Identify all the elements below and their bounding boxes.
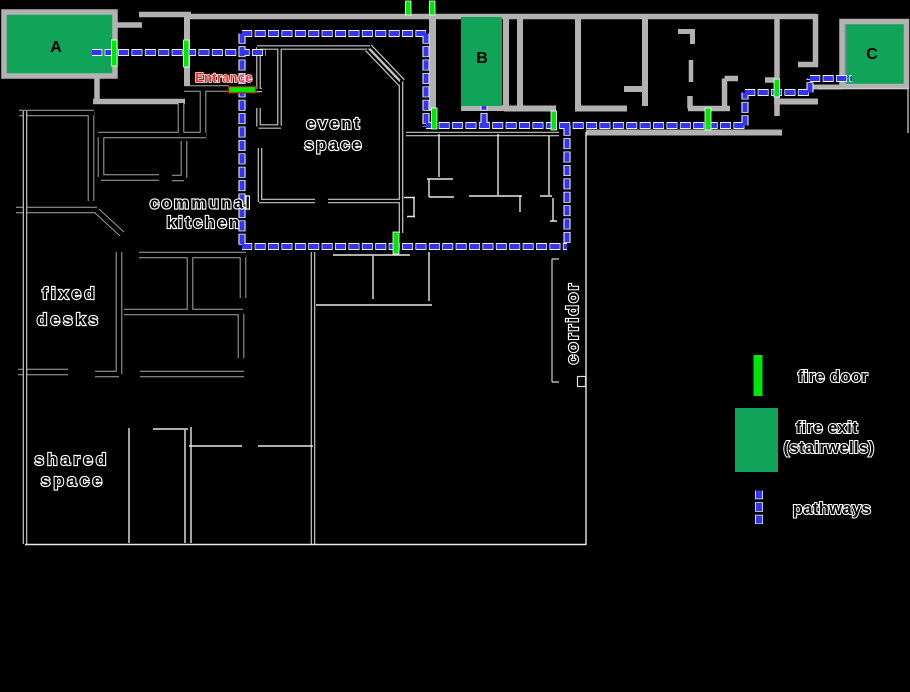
svg-text:pathways: pathways	[793, 500, 871, 518]
svg-text:(stairwells): (stairwells)	[784, 439, 875, 457]
svg-text:communal: communal	[150, 194, 253, 213]
svg-text:C: C	[866, 46, 878, 63]
svg-text:fire exit: fire exit	[796, 419, 858, 437]
svg-text:shared: shared	[35, 450, 110, 469]
svg-text:space: space	[304, 135, 363, 154]
svg-text:fire door: fire door	[798, 368, 869, 386]
svg-text:desks: desks	[37, 310, 101, 329]
svg-text:kitchen: kitchen	[167, 213, 242, 232]
svg-text:A: A	[50, 39, 62, 56]
svg-text:B: B	[476, 50, 488, 67]
svg-text:event: event	[306, 114, 361, 133]
svg-text:Entrance: Entrance	[195, 71, 253, 85]
svg-text:fixed: fixed	[42, 284, 98, 303]
svg-text:space: space	[41, 471, 105, 490]
svg-text:corridor: corridor	[563, 282, 582, 365]
